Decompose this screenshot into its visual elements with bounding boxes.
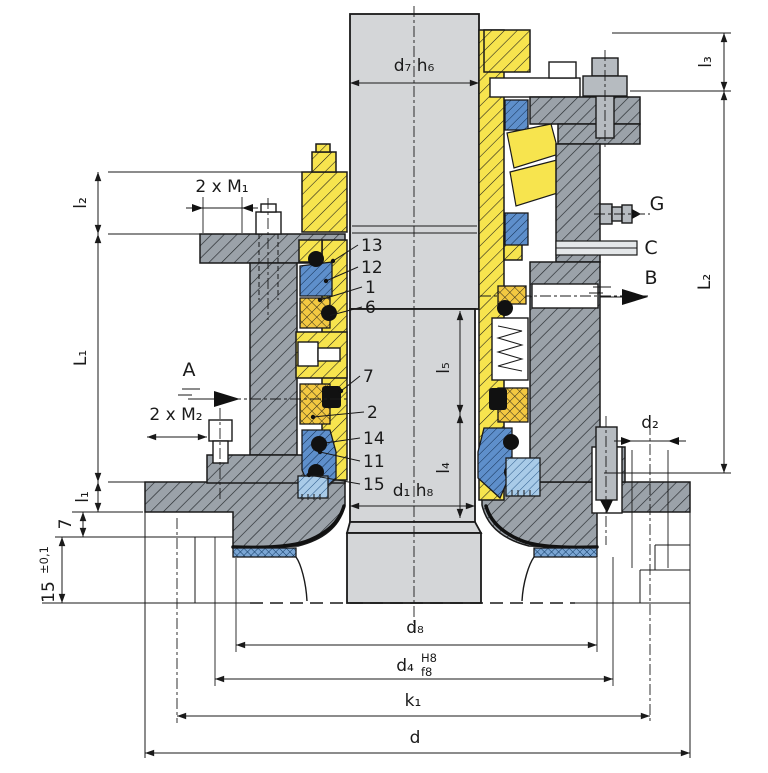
dim-label-L1: L₁ xyxy=(71,350,91,366)
nozzle-curve-left xyxy=(296,557,307,601)
dim-label-d4-lower: f8 xyxy=(421,665,432,679)
dim-label-L2: L₂ xyxy=(695,274,715,290)
part-label-2: 2 xyxy=(367,403,378,423)
dim-label-d8: d₈ xyxy=(406,618,424,638)
dim-label-k1: k₁ xyxy=(405,691,422,711)
dim-label-15: 15 xyxy=(39,581,59,603)
technical-drawing-page: d₇ h₆ l₃ L₂ l₂ L₁ l₁ 7 15 ±0,1 2 x M₁ 2 … xyxy=(0,0,768,768)
o-ring-6 xyxy=(321,305,337,321)
part-label-14: 14 xyxy=(363,429,385,449)
port-label-b: B xyxy=(644,267,657,289)
part-label-11: 11 xyxy=(363,452,385,472)
m2-stud xyxy=(209,420,232,441)
seal-7 xyxy=(322,386,341,408)
part-label-12: 12 xyxy=(361,258,383,278)
nozzle-curve-right xyxy=(522,557,534,601)
m1-stud xyxy=(256,212,281,234)
part-label-7: 7 xyxy=(363,367,374,387)
dim-label-d4: d₄ xyxy=(396,656,414,676)
seal-section-drawing: d₇ h₆ l₃ L₂ l₂ L₁ l₁ 7 15 ±0,1 2 x M₁ 2 … xyxy=(0,0,768,768)
seal-ring-12 xyxy=(300,262,332,296)
dim-label-l4: l₄ xyxy=(434,462,454,474)
port-label-c: C xyxy=(644,237,657,259)
part-label-6: 6 xyxy=(365,298,376,318)
dim-m2: 2 x M₂ xyxy=(147,405,207,437)
seal-cartridge-left xyxy=(296,240,347,500)
dim-label-15-tol: ±0,1 xyxy=(37,546,51,574)
dim-label-m2: 2 x M₂ xyxy=(149,405,202,425)
vent-fitting xyxy=(302,172,347,232)
dim-label-7: 7 xyxy=(56,519,76,530)
dim-label-d7: d₇ h₆ xyxy=(394,56,435,76)
o-ring-13 xyxy=(308,251,324,267)
part-label-15: 15 xyxy=(363,475,385,495)
dim-label-d4-upper: H8 xyxy=(421,651,437,665)
dim-label-d1: d₁ h₈ xyxy=(393,481,434,501)
port-label-g: G xyxy=(650,193,665,215)
dim-label-l5: l₅ xyxy=(434,362,454,374)
dim-label-m1: 2 x M₁ xyxy=(195,177,248,197)
dim-label-d: d xyxy=(410,728,421,748)
dim-label-l2: l₂ xyxy=(71,197,91,209)
part-label-1: 1 xyxy=(365,278,376,298)
dim-label-l1: l₁ xyxy=(73,491,93,503)
flow-arrow-b xyxy=(622,289,648,305)
port-label-a: A xyxy=(183,359,196,381)
bearing-cage xyxy=(505,100,528,130)
part-label-13: 13 xyxy=(361,236,383,256)
dim-label-l3: l₃ xyxy=(696,56,716,68)
dim-m1: 2 x M₁ xyxy=(186,177,258,233)
